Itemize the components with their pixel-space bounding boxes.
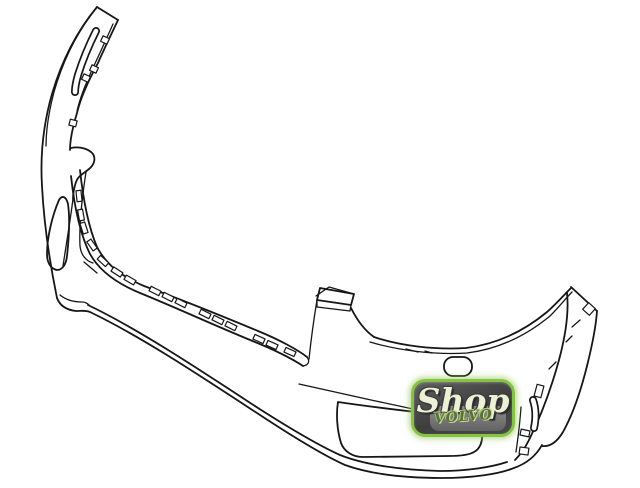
sensor-hole (444, 357, 472, 376)
hatch-line (84, 262, 97, 273)
arm-tab (69, 119, 77, 127)
bumper-line-art (0, 0, 640, 488)
grille-slot (76, 190, 82, 201)
parts-diagram-canvas: Shop VOLVO (0, 0, 640, 488)
arch-notch (534, 384, 544, 397)
grille-slot (149, 286, 161, 295)
arm-top-edge (97, 7, 118, 20)
grille-slot (124, 275, 136, 285)
corner-step-upper (60, 295, 89, 305)
grille-slot (175, 298, 187, 307)
grille-slot (162, 292, 174, 301)
corner-step-lower (57, 298, 90, 312)
grille-slot (78, 209, 85, 221)
grille-slot (111, 267, 123, 277)
arch-dash (549, 362, 556, 369)
arch-dash (572, 320, 580, 327)
center-top (309, 287, 572, 376)
arm-tab (101, 36, 110, 44)
corner-tab (583, 303, 596, 316)
right-corner (515, 287, 597, 460)
arch-slot-core (533, 400, 535, 428)
ledge-upper-line (374, 288, 571, 349)
arch-dash (566, 336, 572, 342)
arch-inner-segment (516, 407, 521, 452)
grille-slots (76, 190, 296, 356)
right-outer-edge (542, 311, 597, 446)
washer-neck-line (309, 300, 317, 359)
shop-volvo-watermark: Shop VOLVO (411, 379, 515, 437)
washer-cover-top (317, 288, 354, 305)
washer-right-flow (351, 308, 374, 337)
grille-slot (97, 255, 109, 266)
band-lower-edge (71, 176, 303, 366)
band-upper-edge (80, 170, 307, 357)
band-end-cap (303, 357, 309, 366)
arch-tab (520, 429, 530, 437)
grille-band (71, 170, 309, 366)
arch-tab (519, 447, 529, 455)
left-arm (41, 7, 118, 298)
